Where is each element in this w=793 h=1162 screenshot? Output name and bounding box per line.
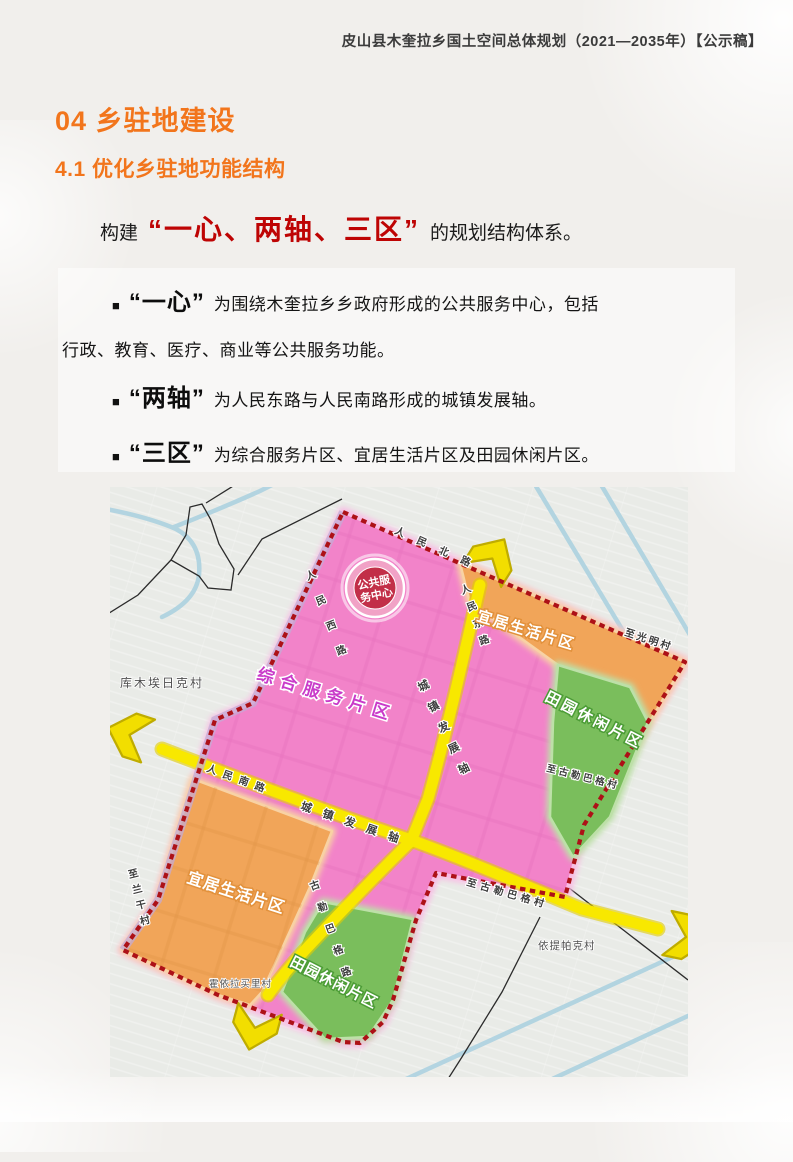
key-points-panel: ■ “一心” 为围绕木奎拉乡乡政府形成的公共服务中心，包括 行政、教育、医疗、商… bbox=[58, 268, 735, 472]
bullet-term: “一心” bbox=[129, 282, 205, 317]
village-label-kumuairike: 库木埃日克村 bbox=[120, 675, 204, 690]
bullet-text: 为围绕木奎拉乡乡政府形成的公共服务中心，包括 bbox=[214, 290, 599, 315]
bullet-square-icon: ■ bbox=[112, 449, 120, 464]
intro-suffix: 的规划结构体系。 bbox=[430, 218, 582, 245]
doc-header: 皮山县木奎拉乡国土空间总体规划（2021—2035年）【公示稿】 bbox=[342, 30, 763, 51]
bullet-term: “两轴” bbox=[129, 378, 205, 413]
intro-prefix: 构建 bbox=[100, 218, 138, 245]
planning-structure-map: 公共服 务中心 人民北路 人民西路 人民东路 城镇发展轴 人民南路 城镇发展轴 … bbox=[110, 487, 688, 1077]
bullet-square-icon: ■ bbox=[112, 394, 120, 409]
bullet-text: 为人民东路与人民南路形成的城镇发展轴。 bbox=[214, 386, 547, 411]
intro-line: 构建 “一心、两轴、三区” 的规划结构体系。 bbox=[100, 208, 582, 248]
section-title: 04 乡驻地建设 bbox=[55, 99, 236, 138]
plan-document-page: { "page": { "doc_header": "皮山县木奎拉乡国土空间总体… bbox=[0, 0, 793, 1122]
bullet-three-districts: ■ “三区” 为综合服务片区、宜居生活片区及田园休闲片区。 bbox=[112, 433, 599, 468]
subsection-title: 4.1 优化乡驻地功能结构 bbox=[55, 153, 286, 183]
village-label-yitipake: 依提帕克村 bbox=[538, 939, 596, 952]
bullet-two-axes: ■ “两轴” 为人民东路与人民南路形成的城镇发展轴。 bbox=[112, 378, 546, 413]
bullet-text-continued: 行政、教育、医疗、商业等公共服务功能。 bbox=[62, 336, 395, 361]
bullet-square-icon: ■ bbox=[112, 298, 120, 313]
bullet-one-heart: ■ “一心” 为围绕木奎拉乡乡政府形成的公共服务中心，包括 bbox=[112, 282, 599, 317]
public-service-center-marker: 公共服 务中心 bbox=[342, 555, 408, 621]
intro-highlight: “一心、两轴、三区” bbox=[148, 208, 420, 248]
planning-map-svg: 公共服 务中心 人民北路 人民西路 人民东路 城镇发展轴 人民南路 城镇发展轴 … bbox=[110, 487, 688, 1077]
village-label-huoyilamaili: 霍依拉买里村 bbox=[209, 978, 272, 990]
bullet-term: “三区” bbox=[129, 433, 205, 468]
bullet-text: 为综合服务片区、宜居生活片区及田园休闲片区。 bbox=[214, 441, 599, 466]
